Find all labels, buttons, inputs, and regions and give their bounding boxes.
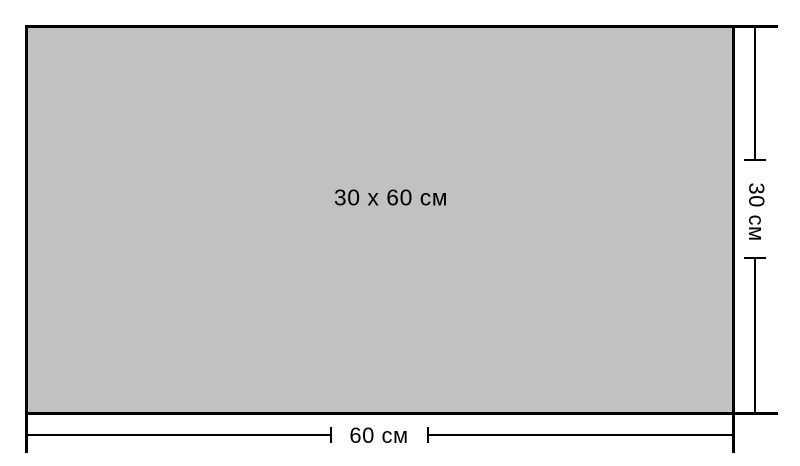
height-dimension-label: 30 см [743,182,769,241]
width-dimension-line-left [27,434,331,436]
bottom-right-cap-line [732,415,735,453]
width-dimension-tick-left [330,427,332,443]
height-dimension-line-lower [754,259,756,412]
top-right-extension-line [735,25,778,28]
dimension-diagram: 30 x 60 см 30 см 60 см [0,0,800,466]
width-dimension-label: 60 см [349,423,408,449]
width-dimension-line-right [429,434,732,436]
rectangle [25,25,735,415]
bottom-right-extension-line [735,412,778,415]
rectangle-size-label: 30 x 60 см [334,185,448,212]
height-dimension-line-upper [754,28,756,160]
height-dimension-tick-upper [744,159,766,161]
